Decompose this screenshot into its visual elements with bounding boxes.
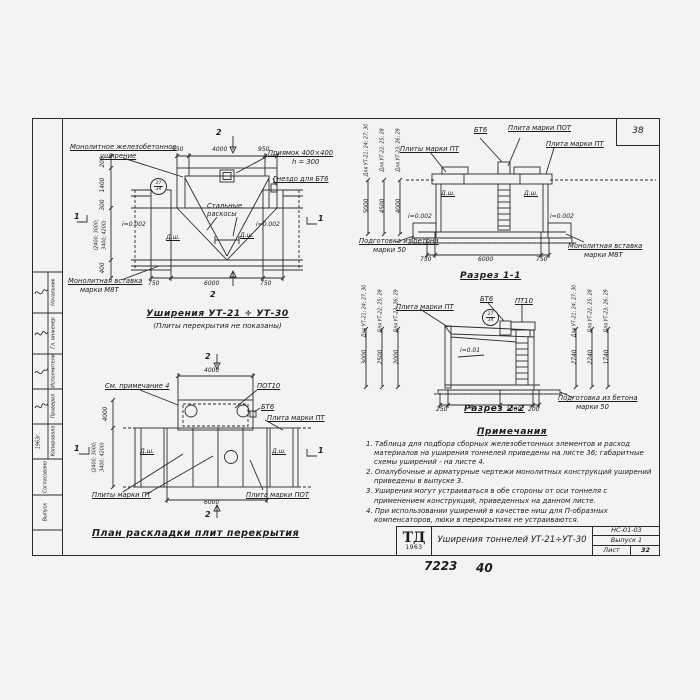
label-prep: Подготовка из бетона (359, 238, 439, 245)
signature-icon (35, 403, 48, 408)
titleblock-title-cell: Уширения тоннелей УТ-21÷УТ-30 (432, 526, 592, 556)
dim-rot: 400 (101, 262, 107, 273)
label-insert: марки М8Т (80, 287, 119, 294)
dim: 950 (172, 147, 183, 153)
slope-label: i=0.01 (460, 348, 480, 354)
issue-label: Выпуск 1 (611, 537, 642, 544)
dim-rot: (2400; 3000; (94, 441, 99, 472)
footer-code: 7223 (424, 559, 457, 573)
sheet-number: 32 (641, 547, 650, 554)
stamp-row: Выпуск (45, 503, 50, 522)
dim-group: Для УТ-22; 25; 28 (380, 289, 385, 332)
dim-rot: 2240 (589, 350, 595, 365)
slope-label: i=0.002 (408, 214, 432, 220)
stamp-year: 1963г. (38, 433, 43, 449)
label-insert: Монолитная вставка (68, 278, 142, 285)
label-plate-pt: Плита марки ПТ (546, 141, 604, 148)
dim-group: Для УТ-21; 24; 27; 30 (366, 124, 371, 177)
joint-label: Д.ш. (140, 449, 154, 455)
stamp-role: Гл. инженер (53, 317, 58, 348)
dim-rot: 3400; 4200) (104, 220, 109, 249)
footer-page: 40 (476, 561, 493, 575)
note-item: 4. При использовании уширений в качестве… (366, 507, 658, 525)
plan-bottom-drawing (65, 350, 365, 535)
dim: 750 (536, 257, 547, 263)
dim-rot: 2500 (379, 350, 385, 365)
notes-list: 1. Таблица для подбора сборных железобет… (366, 440, 658, 526)
label-bt6: БТ6 (474, 127, 487, 134)
dim: 6000 (204, 281, 219, 287)
detail-mark-den: 34 (488, 318, 494, 323)
label-prep: Подготовка из бетона (558, 395, 638, 402)
label-prep: марки 50 (373, 247, 406, 254)
slope-label: i=0.002 (256, 222, 280, 228)
section-mark-2: 2 (205, 510, 211, 519)
signature-icon (35, 331, 48, 335)
titleblock-title: Уширения тоннелей УТ-21÷УТ-30 (437, 536, 586, 545)
stamp-role: Исполнители (53, 354, 58, 388)
dim-rot: 5000 (365, 199, 371, 214)
plan-bottom-title: План раскладки плит перекрытия (92, 528, 299, 539)
titleblock-logo: ТД 1963 (396, 526, 432, 556)
label-braces: раскосы (207, 211, 237, 218)
signature-icon (35, 368, 48, 374)
label-note-ref: См. примечание 4 (105, 383, 169, 390)
dim: 250 (436, 407, 447, 413)
section2-title: Разрез 2-2 (464, 404, 525, 414)
dim-group: Для УТ-21; 24; 27; 30 (364, 285, 369, 338)
label-insert: Монолитная вставка (568, 243, 642, 250)
joint-label: Д.ш. (240, 233, 254, 239)
section-mark-2: 2 (205, 352, 211, 361)
section1-title: Разрез 1-1 (460, 271, 521, 281)
dim-rot: 2740 (573, 350, 579, 365)
label-pit: Приямок 400×400 (268, 150, 333, 157)
stamp-role: Копировала (53, 426, 58, 456)
dim-group: Для УТ-23; 26; 29 (606, 289, 611, 332)
detail-mark-den: 34 (156, 187, 162, 192)
note-item: 3. Уширения могут устраиваться в обе сто… (366, 487, 658, 505)
signature-icon (35, 289, 48, 294)
label-plate-pot: Плита марки ПОТ (508, 125, 571, 132)
dim: 4000 (212, 147, 227, 153)
label-socket: Гнездо для БТ6 (273, 176, 328, 183)
plan-top-title: Уширения УТ-21 ÷ УТ-30 (130, 309, 305, 319)
dim-rot: 3400; 4200) (102, 442, 107, 471)
stamp-divider (62, 118, 63, 556)
dim-group: Для УТ-22; 25; 28 (382, 128, 387, 171)
section-mark-1: 1 (318, 214, 324, 223)
dim: 950 (258, 147, 269, 153)
section-mark-1: 1 (74, 212, 80, 221)
label-insert: марки М8Т (584, 252, 623, 259)
joint-label: Д.ш. (524, 191, 538, 197)
dim-group: Для УТ-22; 25; 28 (590, 289, 595, 332)
sheet-label: Лист (603, 547, 619, 554)
stamp-row: Согласовано (45, 461, 50, 493)
label-bt6: БТ6 (261, 404, 274, 411)
slope-label: i=0.002 (122, 222, 146, 228)
note-item: 1. Таблица для подбора сборных железобет… (366, 440, 658, 467)
doc-code: НС-01-03 (611, 527, 642, 534)
dim-rot: 1740 (605, 350, 611, 365)
detail-mark: 27 34 (482, 309, 499, 326)
label-widening: Монолитное железобетонное (70, 144, 177, 151)
dim-rot: 2000 (395, 350, 401, 365)
label-plates-pt: Плиты марки ПТ (400, 146, 459, 153)
dim: 750 (420, 257, 431, 263)
dim: 750 (260, 281, 271, 287)
stamp-role: Начальник (53, 278, 58, 305)
section-mark-1: 1 (74, 444, 80, 453)
label-pot10: ПОТ10 (257, 383, 280, 390)
dim-rot: 4500 (381, 199, 387, 214)
slope-label: i=0.002 (550, 214, 574, 220)
dim-rot: 300 (101, 199, 107, 210)
logo-td: ТД (403, 531, 426, 545)
label-plates-pt: Плиты марки ПТ (92, 492, 151, 499)
joint-label: Д.ш. (441, 191, 455, 197)
section-mark-1: 1 (318, 446, 324, 455)
dim: 200 (528, 407, 539, 413)
note-item: 2. Опалубочные и арматурные чертежи моно… (366, 468, 658, 486)
dim-rot: (2400; 3000; (96, 219, 101, 250)
dim: 6000 (204, 500, 219, 506)
detail-mark: 27 34 (150, 178, 167, 195)
dim: 6000 (478, 257, 493, 263)
joint-label: Д.ш. (166, 235, 180, 241)
section-mark-2: 2 (210, 290, 216, 299)
joint-label: Д.ш. (272, 449, 286, 455)
label-plate-pt: Плита марки ПТ (396, 304, 454, 311)
stamp-role: Проверил (53, 394, 58, 419)
notes-heading: Примечания (452, 427, 572, 437)
label-plate-pot: Плита марки ПОТ (246, 492, 309, 499)
dim-rot: 4000 (397, 199, 403, 214)
section-mark-2: 2 (216, 128, 222, 137)
dim: 750 (148, 281, 159, 287)
label-pit: h = 300 (292, 159, 319, 166)
plan-top-subtitle: (Плиты перекрытия не показаны) (130, 322, 305, 330)
label-bt6: БТ6 (480, 296, 493, 303)
dim-group: Для УТ-21; 24; 27; 30 (574, 285, 579, 338)
drawing-sheet: 38 Начальник Гл. инженер Исполнители Про… (0, 0, 700, 700)
logo-year: 1963 (405, 545, 422, 551)
dim-rot: 4000 (104, 407, 110, 422)
dim-rot: 1400 (101, 178, 107, 193)
label-prep: марки 50 (576, 404, 609, 411)
dim-rot: 200 (101, 156, 107, 167)
dim: 4000 (204, 368, 219, 374)
label-plate-pt: Плита марки ПТ (267, 415, 325, 422)
label-pt10: ПТ10 (515, 298, 533, 305)
titleblock-right: НС-01-03 Выпуск 1 Лист 32 (592, 526, 660, 556)
